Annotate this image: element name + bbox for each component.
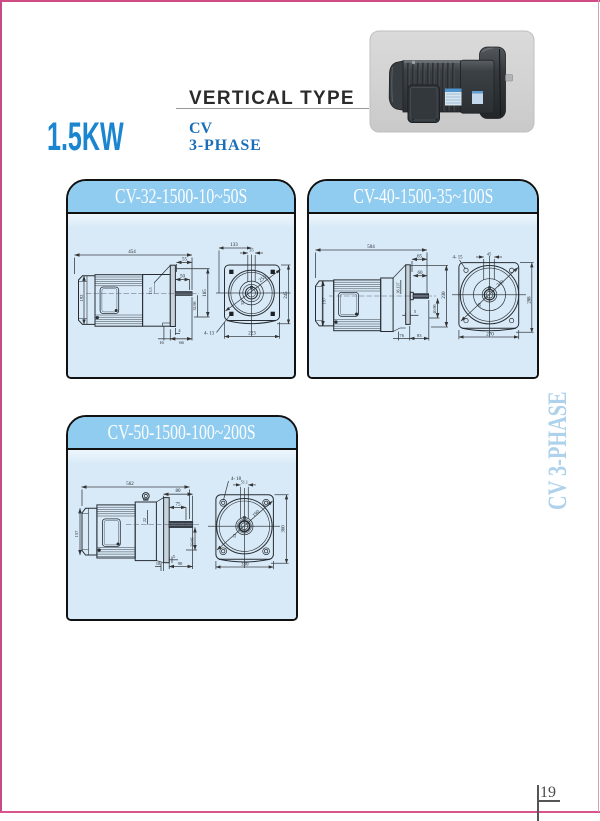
svg-text:59.66: 59.66 (190, 538, 195, 547)
svg-text:330: 330 (241, 562, 249, 567)
svg-text:562: 562 (126, 482, 134, 487)
svg-text:230: 230 (442, 291, 447, 299)
svg-text:75: 75 (176, 503, 182, 508)
svg-text:19: 19 (477, 303, 482, 307)
svg-text:65: 65 (417, 255, 423, 260)
svg-text:45: 45 (487, 251, 492, 256)
svg-text:55: 55 (182, 258, 188, 263)
svg-text:223: 223 (248, 332, 256, 337)
svg-text:80: 80 (176, 489, 182, 494)
svg-text:288: 288 (527, 296, 532, 304)
svg-text:5: 5 (414, 309, 417, 314)
svg-text:51.1: 51.1 (241, 479, 248, 484)
svg-text:5: 5 (173, 554, 176, 559)
svg-text:90: 90 (178, 561, 183, 566)
svg-text:4: 4 (178, 328, 181, 333)
svg-text:50: 50 (180, 275, 186, 280)
svg-text:197: 197 (322, 297, 327, 305)
svg-text:504: 504 (367, 245, 375, 250)
svg-text:60: 60 (418, 271, 424, 276)
svg-text:18: 18 (156, 561, 161, 566)
svg-text:245: 245 (284, 291, 289, 299)
svg-text:360: 360 (282, 525, 287, 533)
svg-text:13.5: 13.5 (148, 288, 153, 295)
svg-text:454: 454 (128, 250, 136, 255)
svg-text:76: 76 (399, 333, 404, 338)
svg-text:185: 185 (203, 289, 208, 297)
svg-text:16: 16 (159, 340, 164, 345)
svg-text:32: 32 (240, 301, 245, 305)
svg-text:14: 14 (232, 534, 237, 538)
svg-text:157: 157 (74, 530, 79, 538)
svg-text:22: 22 (142, 518, 147, 522)
svg-text:36.137: 36.137 (395, 283, 400, 294)
svg-text:83: 83 (417, 333, 422, 338)
svg-text:32.66: 32.66 (192, 302, 197, 311)
svg-text:4- 13: 4- 13 (204, 332, 215, 337)
svg-text:190: 190 (252, 509, 261, 518)
svg-text:192: 192 (79, 294, 84, 302)
svg-text:4- 15: 4- 15 (453, 256, 464, 261)
svg-text:66: 66 (179, 340, 184, 345)
svg-text:133: 133 (230, 243, 238, 248)
svg-text:35: 35 (249, 247, 254, 252)
svg-text:40.86: 40.86 (432, 305, 437, 314)
svg-text:270: 270 (486, 332, 494, 337)
